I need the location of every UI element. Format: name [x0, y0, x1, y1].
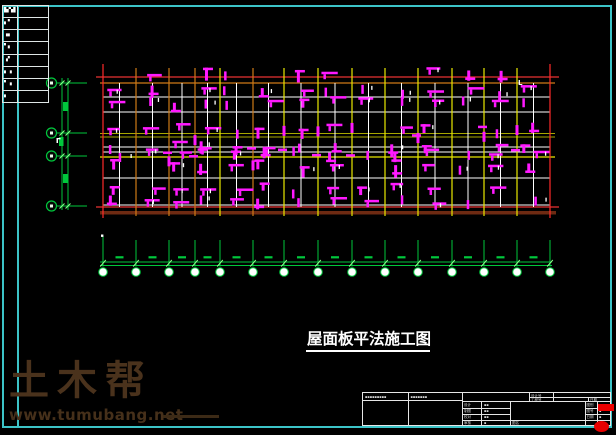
table-row: ▗▖	[3, 30, 48, 42]
beam-label: L	[518, 79, 522, 87]
sign-row-label: 审核	[464, 421, 471, 425]
date-row-label: 日期	[587, 415, 594, 419]
table-row: ▖▗	[3, 67, 48, 79]
drawing-title: 屋面板平法施工图	[307, 330, 431, 348]
frame-bottom-line	[2, 426, 612, 428]
frame-top-line	[2, 5, 612, 7]
row-mark: ▖▘	[4, 19, 17, 25]
sign-row-value: ▪▪	[484, 403, 489, 407]
sign-row-value: ▪	[484, 421, 486, 425]
title-underline	[306, 350, 430, 352]
row-mark: ▖	[4, 92, 17, 98]
sign-row-value: ▪▪	[484, 409, 489, 413]
signature-strip-table: ▙▚▌ ▖▘ ▗▖ ▘▖ ▗▘ ▖▗ ▘▗ ▖	[2, 5, 49, 103]
row-mark: ▗▖	[4, 31, 17, 37]
dimensions	[47, 78, 555, 276]
row-mark: ▗▘	[4, 56, 17, 62]
rebar-annotations	[107, 67, 550, 210]
row-mark: ▘▖	[4, 43, 17, 49]
project-no-label: 工程号	[531, 398, 542, 402]
table-row: ▖▘	[3, 18, 48, 30]
sign-row-value: ▪▪	[484, 415, 489, 419]
plan-grid	[96, 64, 559, 218]
sheet-name-label: 图名	[512, 421, 519, 425]
cad-sheet: ▙▚▌ ▖▘ ▗▖ ▘▖ ▗▘ ▖▗ ▘▗ ▖ L 屋面板平法施工图 土木帮 w…	[0, 0, 616, 435]
red-stamp	[598, 404, 614, 411]
sheet-no-label: 图号	[587, 409, 594, 413]
titleblock: ▪▪▪▪▪▪▪▪▪ ▪▪▪▪▪▪▪ 设计号 工程号 日期 设计 ▪▪ 制图 ▪▪…	[362, 392, 611, 426]
sheet-type-label: 图别	[587, 403, 594, 407]
watermark-line	[163, 415, 219, 418]
frame-right-line	[610, 5, 612, 428]
row-mark: ▙▚▌	[4, 7, 17, 13]
red-seal	[594, 421, 609, 432]
company-header-text: ▪▪▪▪▪▪▪▪▪	[365, 395, 386, 399]
table-row: ▙▚▌	[3, 6, 48, 18]
table-row: ▖	[3, 91, 48, 102]
sign-row-label: 校对	[464, 415, 471, 419]
sign-row-label: 制图	[464, 409, 471, 413]
table-row: ▘▖	[3, 42, 48, 54]
project-header-text: ▪▪▪▪▪▪▪	[411, 395, 428, 399]
table-row: ▗▘	[3, 55, 48, 67]
watermark-brand: 土木帮	[9, 359, 153, 403]
date-row-value: ▪	[599, 415, 601, 419]
row-mark: ▖▗	[4, 68, 17, 74]
date-label: 日期	[590, 398, 597, 402]
table-row: ▘▗	[3, 79, 48, 91]
sign-row-label: 设计	[464, 403, 471, 407]
row-mark: ▘▗	[4, 80, 17, 86]
watermark-url: www.tumubang.net	[9, 407, 183, 424]
